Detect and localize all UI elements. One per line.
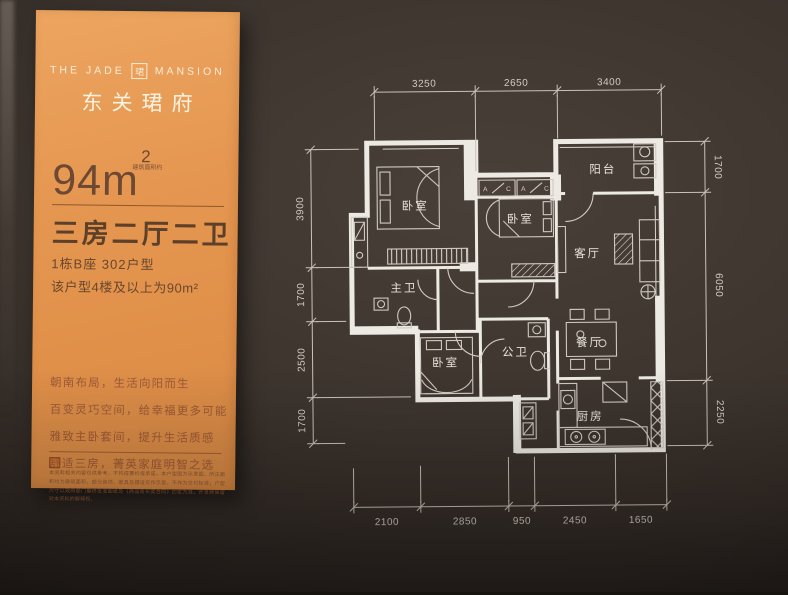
- room-label-bedroom-2: 卧室: [507, 212, 534, 226]
- wardrobe-icon: [512, 264, 555, 277]
- dim-top-3: 3400: [597, 77, 621, 88]
- closet-mark: A: [521, 186, 526, 193]
- dim-bottom-5: 1650: [629, 515, 653, 526]
- dim-top-2: 2650: [504, 78, 528, 89]
- dim-bottom-4: 2450: [563, 515, 587, 526]
- floor-plan: A C A C 卧室 卧室 阳台 客厅 主卫 卧室 公卫 餐厅 厨房: [0, 0, 788, 595]
- dim-right-3: 2250: [714, 400, 725, 424]
- washer-icon: [634, 144, 656, 178]
- dim-left-4: 1700: [297, 409, 308, 433]
- room-label-balcony: 阳台: [589, 162, 616, 176]
- tv-cabinet-icon: [557, 227, 565, 273]
- entry-cabinet-icon: [520, 403, 536, 439]
- closet-mark: C: [506, 186, 511, 193]
- dim-left-1: 3900: [295, 197, 306, 221]
- closet-ac-icon: [479, 180, 553, 197]
- room-label-kitchen: 厨房: [577, 410, 604, 423]
- photo-board: THE JADE 珺 MANSION 东关珺府 94m建筑面积约2 三房二厅二卫…: [0, 0, 788, 592]
- ceiling-lamp-icon: [641, 285, 655, 299]
- toilet-icon: [528, 323, 549, 371]
- tv-table-icon: [614, 234, 632, 264]
- room-label-dining: 餐厅: [576, 335, 603, 349]
- room-label-public-bath: 公卫: [502, 346, 529, 359]
- bed-icon: [377, 167, 440, 230]
- room-label-bedroom-1: 卧室: [402, 199, 429, 213]
- dim-top-1: 3250: [412, 79, 436, 90]
- dim-right-1: 1700: [712, 155, 723, 179]
- shaft-column-icon: [651, 382, 664, 448]
- dim-bottom-2: 2850: [453, 516, 477, 527]
- dim-bottom-1: 2100: [375, 517, 399, 528]
- room-label-master-bath: 主卫: [390, 282, 417, 295]
- dim-left-2: 1700: [296, 283, 307, 307]
- dim-bottom-3: 950: [513, 516, 531, 527]
- room-label-bedroom-3: 卧室: [432, 355, 459, 369]
- room-label-living: 客厅: [574, 246, 601, 260]
- sofa-icon: [639, 220, 660, 282]
- dim-right-2: 6050: [713, 273, 724, 297]
- wardrobe-icon: [388, 248, 468, 264]
- toilet-icon: [374, 298, 411, 328]
- closet-mark: C: [544, 186, 549, 193]
- closet-mark: A: [483, 186, 488, 193]
- dim-left-3: 2500: [296, 348, 307, 372]
